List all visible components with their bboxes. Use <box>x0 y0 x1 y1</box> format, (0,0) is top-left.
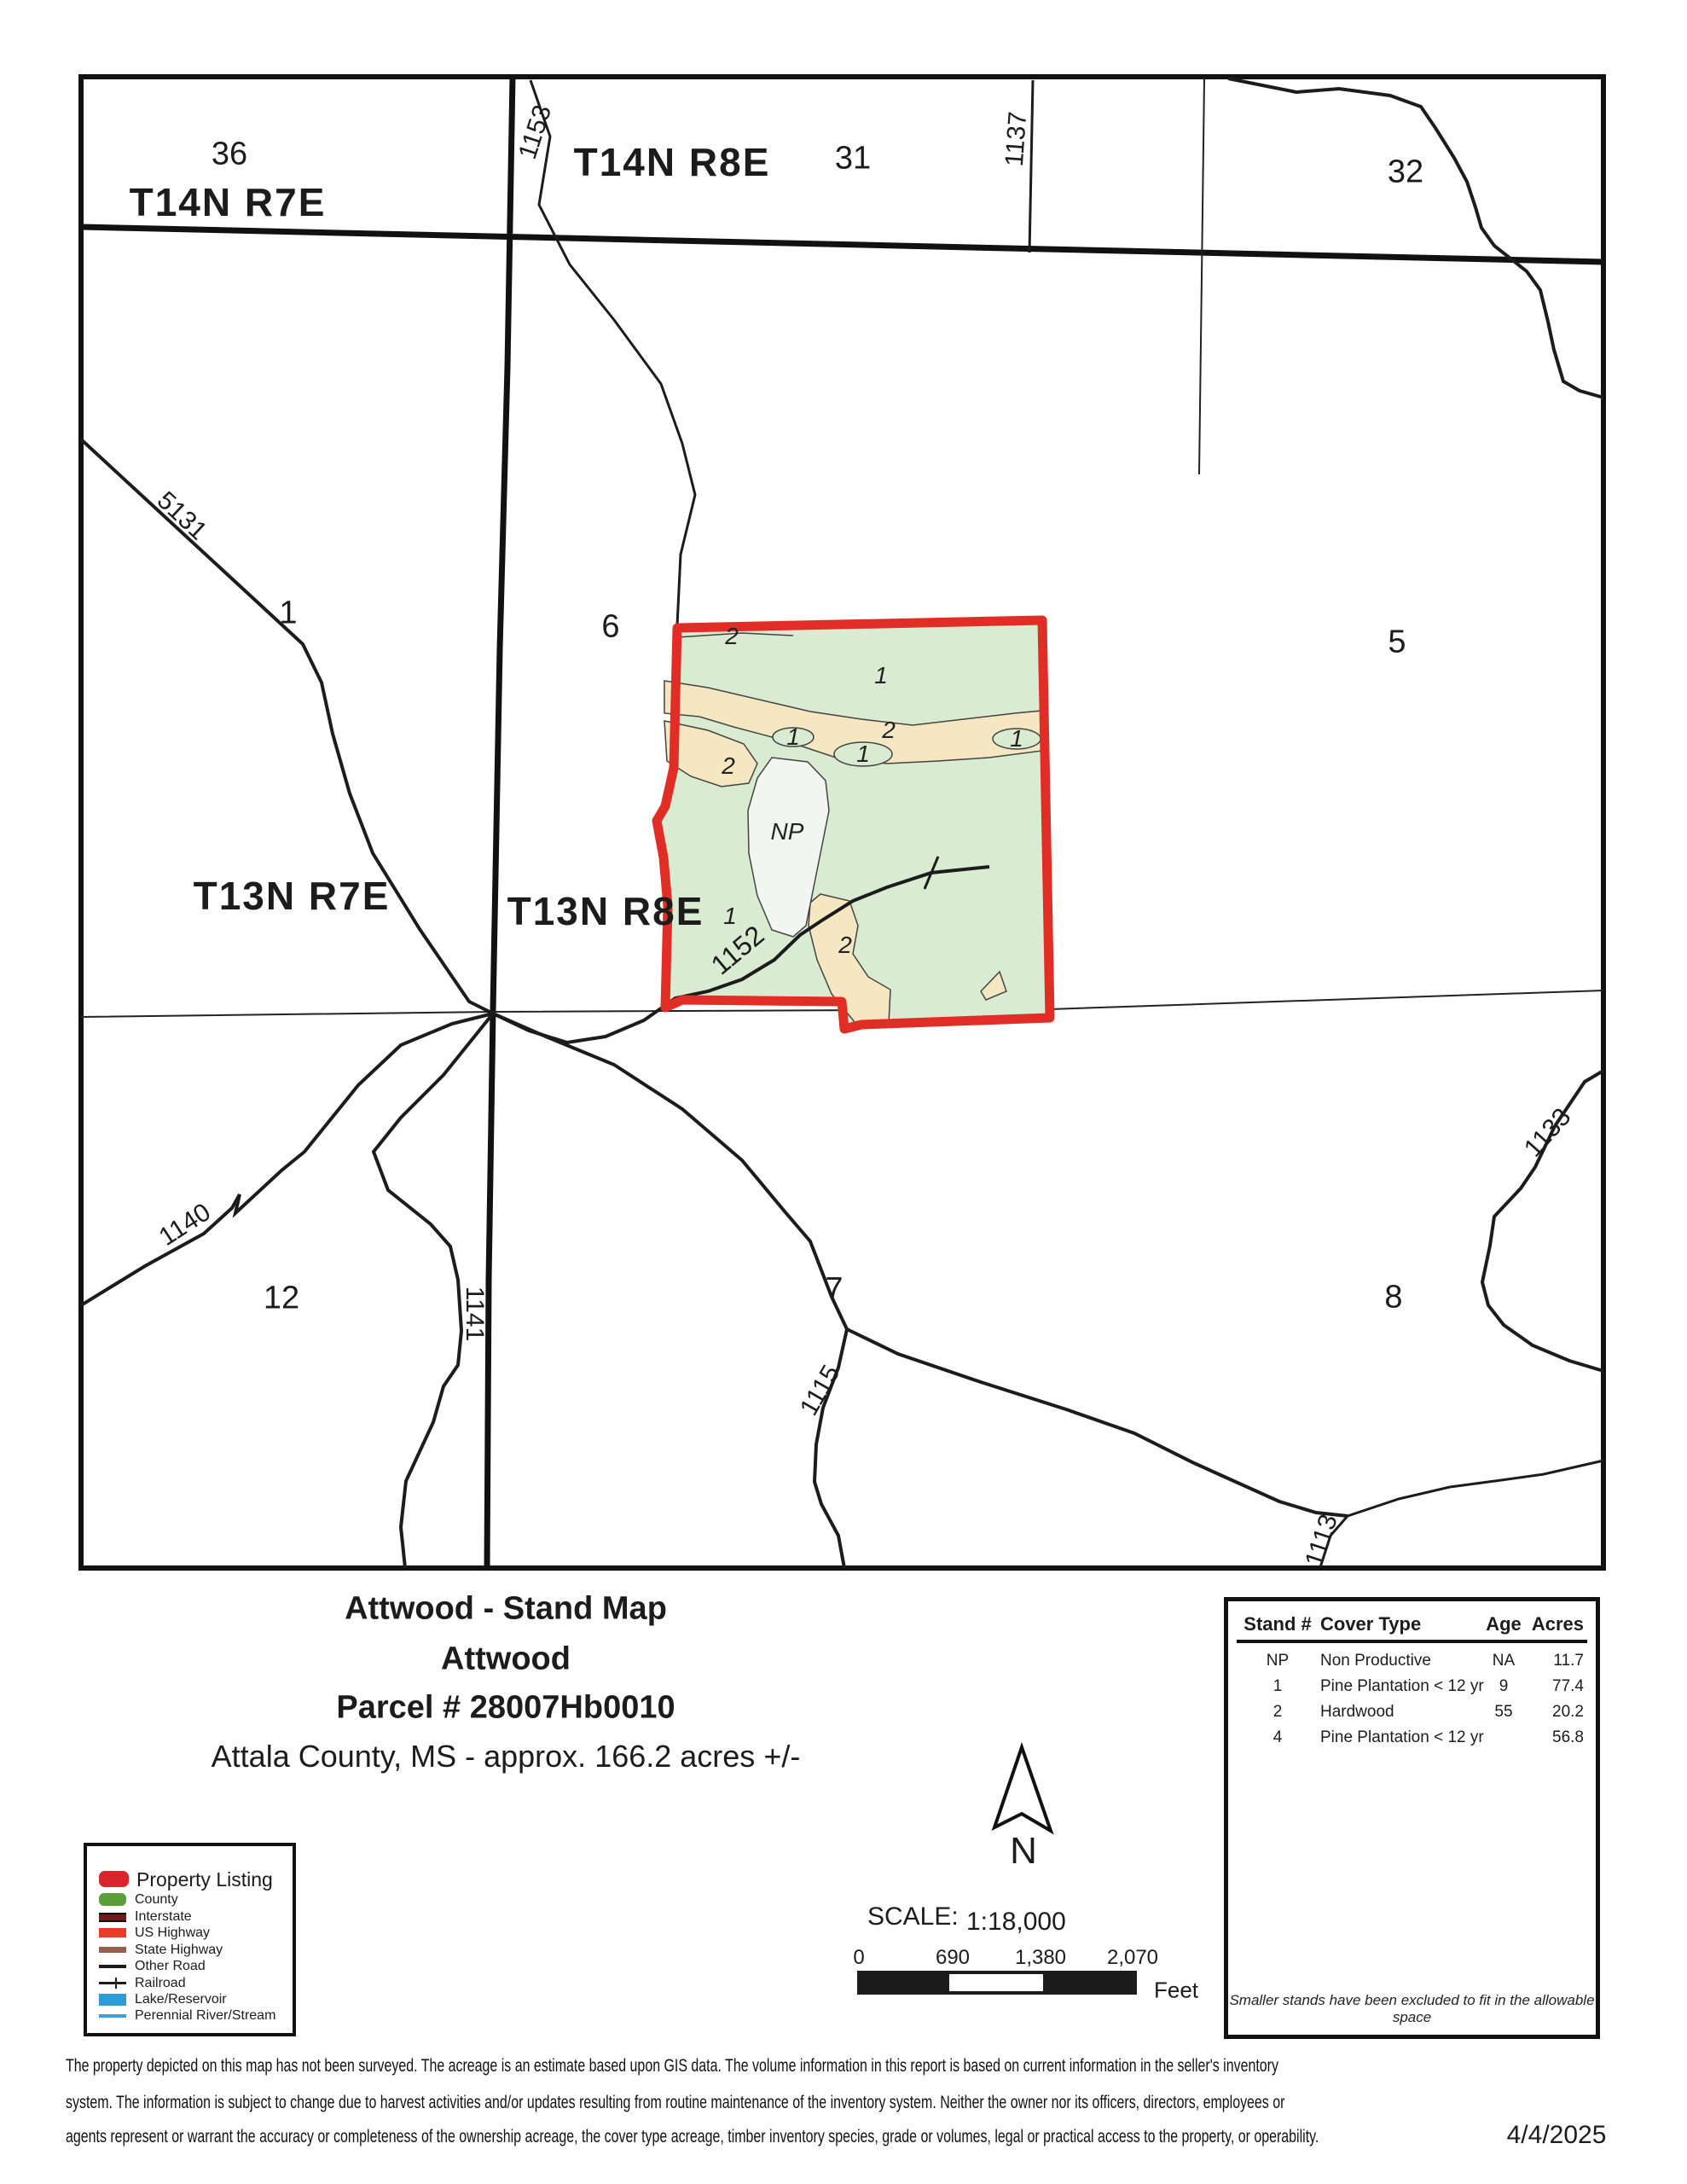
disclaimer-line-1: The property depicted on this map has no… <box>66 2054 1278 2078</box>
interstate-swatch-icon <box>99 1913 126 1922</box>
stand-label-2-mid: 2 <box>882 717 896 744</box>
section-8: 8 <box>1384 1280 1402 1316</box>
legend-label: Railroad <box>135 1976 186 1991</box>
disclaimer-line-3: agents represent or warrant the accuracy… <box>66 2125 1319 2149</box>
lake-swatch-icon <box>99 1994 126 2006</box>
header-acres: Acres <box>1532 1613 1584 1635</box>
county-acreage: Attala County, MS - approx. 166.2 acres … <box>212 1739 801 1774</box>
table-row: NP Non Productive NA 11.7 <box>1228 1650 1596 1672</box>
cell-acres: 56.8 <box>1552 1727 1584 1749</box>
property-listing-swatch-icon <box>99 1871 129 1887</box>
north-label: N <box>1010 1830 1037 1873</box>
cell-stand: 1 <box>1244 1676 1312 1698</box>
cell-age: 55 <box>1477 1701 1530 1723</box>
stand-table: Stand # Cover Type Age Acres NP Non Prod… <box>1224 1597 1600 2039</box>
tract-name: Attwood <box>441 1641 571 1678</box>
cell-cover: Hardwood <box>1320 1701 1394 1723</box>
section-32: 32 <box>1388 154 1423 191</box>
stand-label-1-center-island: 1 <box>856 741 870 768</box>
road-label-1141: 1141 <box>460 1287 489 1342</box>
stand-label-2-top: 2 <box>725 623 739 650</box>
table-note: Smaller stands have been excluded to fit… <box>1228 1992 1596 2026</box>
scale-tick-2070: 2,070 <box>1107 1946 1158 1970</box>
section-1: 1 <box>279 595 297 632</box>
scale-tick-690: 690 <box>936 1946 970 1970</box>
cell-stand: NP <box>1244 1650 1312 1672</box>
cell-acres: 20.2 <box>1552 1701 1584 1723</box>
cell-cover: Pine Plantation < 12 yr <box>1320 1676 1484 1698</box>
legend-label: Lake/Reservoir <box>135 1992 227 2007</box>
stand-label-1-west-island: 1 <box>786 723 800 751</box>
table-header-rule <box>1237 1640 1587 1643</box>
stand-label-1-east-island: 1 <box>1010 725 1023 752</box>
legend-label: Other Road <box>135 1959 206 1974</box>
township-t13n-r7e: T13N R7E <box>194 873 391 919</box>
table-row: 2 Hardwood 55 20.2 <box>1228 1701 1596 1723</box>
legend-label: Interstate <box>135 1909 192 1925</box>
table-row: 1 Pine Plantation < 12 yr 9 77.4 <box>1228 1676 1596 1698</box>
section-6: 6 <box>601 609 619 646</box>
table-row: 4 Pine Plantation < 12 yr 56.8 <box>1228 1727 1596 1749</box>
parcel-number: Parcel # 28007Hb0010 <box>336 1690 675 1727</box>
section-31: 31 <box>835 141 871 177</box>
stand-label-1-top: 1 <box>874 662 888 689</box>
legend-label: US Highway <box>135 1926 210 1941</box>
scale-unit: Feet <box>1154 1978 1198 2004</box>
cell-acres: 11.7 <box>1553 1650 1584 1672</box>
header-stand: Stand # <box>1244 1613 1312 1635</box>
cell-stand: 4 <box>1244 1727 1312 1749</box>
county-swatch-icon <box>99 1893 126 1906</box>
cell-cover: Pine Plantation < 12 yr <box>1320 1727 1484 1749</box>
north-arrow-icon <box>994 1747 1051 1831</box>
scale-label: SCALE: <box>867 1902 959 1931</box>
stand-label-1-south: 1 <box>723 903 737 930</box>
legend-label: County <box>135 1892 178 1908</box>
section-7: 7 <box>825 1272 843 1309</box>
stand-label-np: NP <box>771 818 804 845</box>
stand-map-page: 36 T14N R7E T14N R8E 31 32 1153 1137 513… <box>0 0 1687 2184</box>
disclaimer-line-2: system. The information is subject to ch… <box>66 2091 1284 2115</box>
railroad-tick-icon <box>115 1978 117 1989</box>
legend-label: Property Listing <box>136 1869 273 1890</box>
cell-stand: 2 <box>1244 1701 1312 1723</box>
cell-age: 9 <box>1477 1676 1530 1698</box>
stand-label-2-south-patch: 2 <box>838 932 852 959</box>
header-cover-type: Cover Type <box>1320 1613 1421 1635</box>
section-12: 12 <box>264 1281 299 1317</box>
us-highway-swatch-icon <box>99 1928 126 1937</box>
cell-age: NA <box>1477 1650 1530 1672</box>
cell-acres: 77.4 <box>1552 1676 1584 1698</box>
township-t14n-r7e: T14N R7E <box>130 179 327 225</box>
other-road-swatch-icon <box>99 1965 126 1968</box>
legend-label: Perennial River/Stream <box>135 2008 275 2024</box>
section-36: 36 <box>212 136 247 173</box>
report-date: 4/4/2025 <box>1507 2121 1607 2150</box>
stand-label-2-wedge: 2 <box>722 752 735 780</box>
railroad-swatch-icon <box>99 1982 126 1984</box>
header-age: Age <box>1477 1613 1530 1635</box>
stand-table-header: Stand # Cover Type Age Acres <box>1228 1613 1596 1635</box>
state-highway-swatch-icon <box>99 1947 126 1953</box>
township-t14n-r8e: T14N R8E <box>574 139 771 185</box>
cell-cover: Non Productive <box>1320 1650 1431 1672</box>
legend-label: State Highway <box>135 1943 223 1958</box>
scale-tick-0: 0 <box>853 1946 864 1970</box>
scale-tick-1380: 1,380 <box>1015 1946 1066 1970</box>
section-5: 5 <box>1388 624 1406 661</box>
map-legend: Property Listing County Interstate US Hi… <box>84 1843 296 2036</box>
road-label-1137: 1137 <box>1000 111 1033 168</box>
township-t13n-r8e: T13N R8E <box>507 888 704 934</box>
scale-ratio: 1:18,000 <box>966 1908 1066 1937</box>
scale-bar-middle-segment <box>949 1974 1043 1991</box>
map-title: Attwood - Stand Map <box>345 1591 667 1628</box>
stream-swatch-icon <box>99 2014 126 2018</box>
